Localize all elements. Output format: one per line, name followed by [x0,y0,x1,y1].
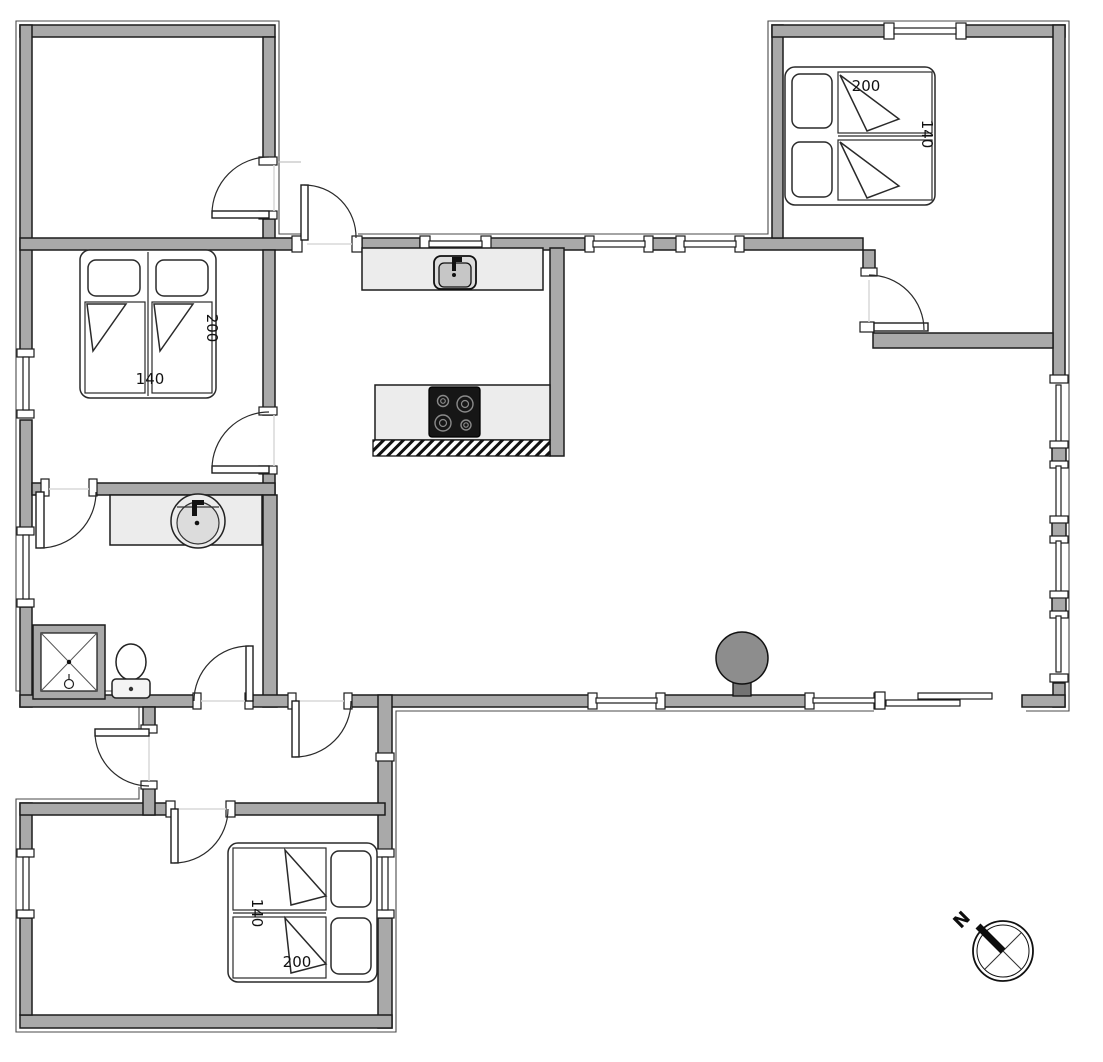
pillow [792,74,832,128]
kitchen-sink-icon [434,256,476,289]
shower-icon [33,625,105,699]
bed-length-label: 200 [283,953,312,971]
pillow [88,260,140,296]
island-hatch [373,440,550,456]
bed-top-right-bedroom: 200 140 [785,67,936,205]
pillow [156,260,208,296]
floor-plan: 200 140 200 140 140 200 N [0,0,1103,1062]
stove-icon [429,387,480,437]
bed-left-bedroom: 200 140 [80,250,221,398]
washbasin-icon [171,494,225,548]
bed-length-label: 200 [203,314,221,343]
bed-length-label: 200 [852,77,881,95]
pillow [331,851,371,907]
floor-plan-page: 200 140 200 140 140 200 N [0,0,1103,1062]
pillow [792,142,832,197]
bed-width-label: 140 [248,899,266,928]
bed-width-label: 140 [136,370,165,388]
pillow [331,918,371,974]
bed-width-label: 140 [918,120,936,149]
bed-bottom-bedroom: 140 200 [228,843,377,982]
toilet-icon [112,644,150,698]
